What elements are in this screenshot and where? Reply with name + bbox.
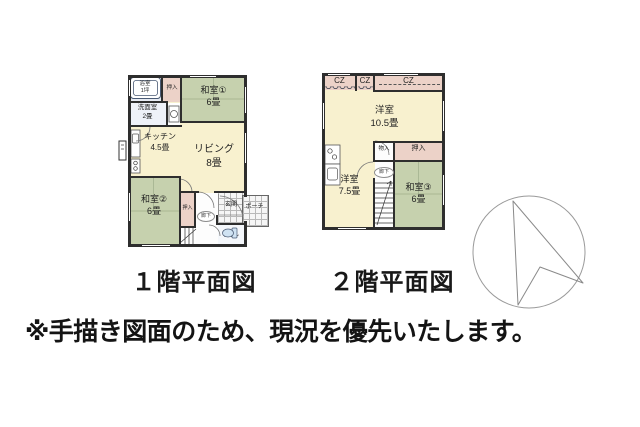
room-label-closet-2f: 押入 <box>395 144 442 153</box>
water-heater-icon <box>119 141 126 160</box>
room-label-closet-top: 押入 <box>164 85 180 92</box>
wall <box>216 223 247 225</box>
wall <box>322 73 325 230</box>
room-label-cz2: CZ <box>357 76 373 87</box>
room-label-entrance: 玄関 <box>218 201 244 209</box>
window-mark <box>244 133 247 163</box>
wall <box>180 121 247 123</box>
window-mark <box>442 101 445 131</box>
wall <box>194 193 196 228</box>
floor2-plan: CZ CZ CZ 洋室10.5畳 物入 押入 洋室7.5畳 和室③6畳 廊下 <box>322 73 445 230</box>
room-label-porch: ポーチ <box>242 203 267 211</box>
wall <box>373 178 375 227</box>
wall <box>179 191 199 193</box>
room-label-living: リビング8畳 <box>184 143 244 170</box>
wall <box>128 125 182 127</box>
washing-machine-icon <box>169 106 179 122</box>
window-mark <box>142 244 170 247</box>
north-arrow-compass-icon <box>471 194 587 310</box>
floor1-caption: １階平面図 <box>126 262 262 297</box>
room-label-bath: 浴室1坪 <box>130 81 160 96</box>
hallway-bubble-1f: 廊下 <box>197 211 215 222</box>
room-label-washitsu1: 和室①6畳 <box>182 84 245 108</box>
hanger-pipe-icon <box>358 86 373 92</box>
wall <box>442 73 445 230</box>
room-label-washroom: 洗面室2畳 <box>129 104 166 122</box>
wall <box>373 160 445 162</box>
wall <box>373 90 445 92</box>
wall <box>128 75 247 78</box>
wall <box>214 191 247 193</box>
room-label-cz3: CZ <box>375 76 442 87</box>
stairs-lines <box>180 228 196 244</box>
room-label-cz1: CZ <box>322 76 357 87</box>
room-label-washitsu3: 和室③6畳 <box>395 181 442 205</box>
toilet-icon <box>222 227 238 239</box>
floor1-plan: 浴室1坪 押入 和室①6畳 洗面室2畳 キッチン4.5畳 リビング8畳 和室②6… <box>128 75 247 247</box>
floor-plan-image: 浴室1坪 押入 和室①6畳 洗面室2畳 キッチン4.5畳 リビング8畳 和室②6… <box>0 0 640 427</box>
window-mark <box>442 175 445 205</box>
disclaimer-note: ※手描き図面のため、現況を優先いたします。 <box>25 312 536 348</box>
hallway-bubble-2f: 廊下 <box>374 167 394 178</box>
room-label-washitsu2: 和室②6畳 <box>130 193 178 217</box>
wall <box>166 101 168 127</box>
window-mark <box>190 75 216 78</box>
room-label-western-75: 洋室7.5畳 <box>327 173 372 197</box>
wall <box>179 226 196 228</box>
room-label-western-105: 洋室10.5畳 <box>357 105 412 131</box>
window-mark <box>338 227 366 230</box>
wall <box>161 75 163 102</box>
window-mark <box>322 103 325 129</box>
room-label-kitchen: キッチン4.5畳 <box>138 132 182 154</box>
room-label-storage: 物入 <box>375 146 393 153</box>
wall <box>128 176 181 178</box>
room-label-closet-hall: 押入 <box>181 205 194 212</box>
hanger-pipe-icon <box>325 86 355 92</box>
wall <box>373 141 445 143</box>
stairs-lines <box>375 181 393 225</box>
floor2-caption: ２階平面図 <box>324 262 460 297</box>
